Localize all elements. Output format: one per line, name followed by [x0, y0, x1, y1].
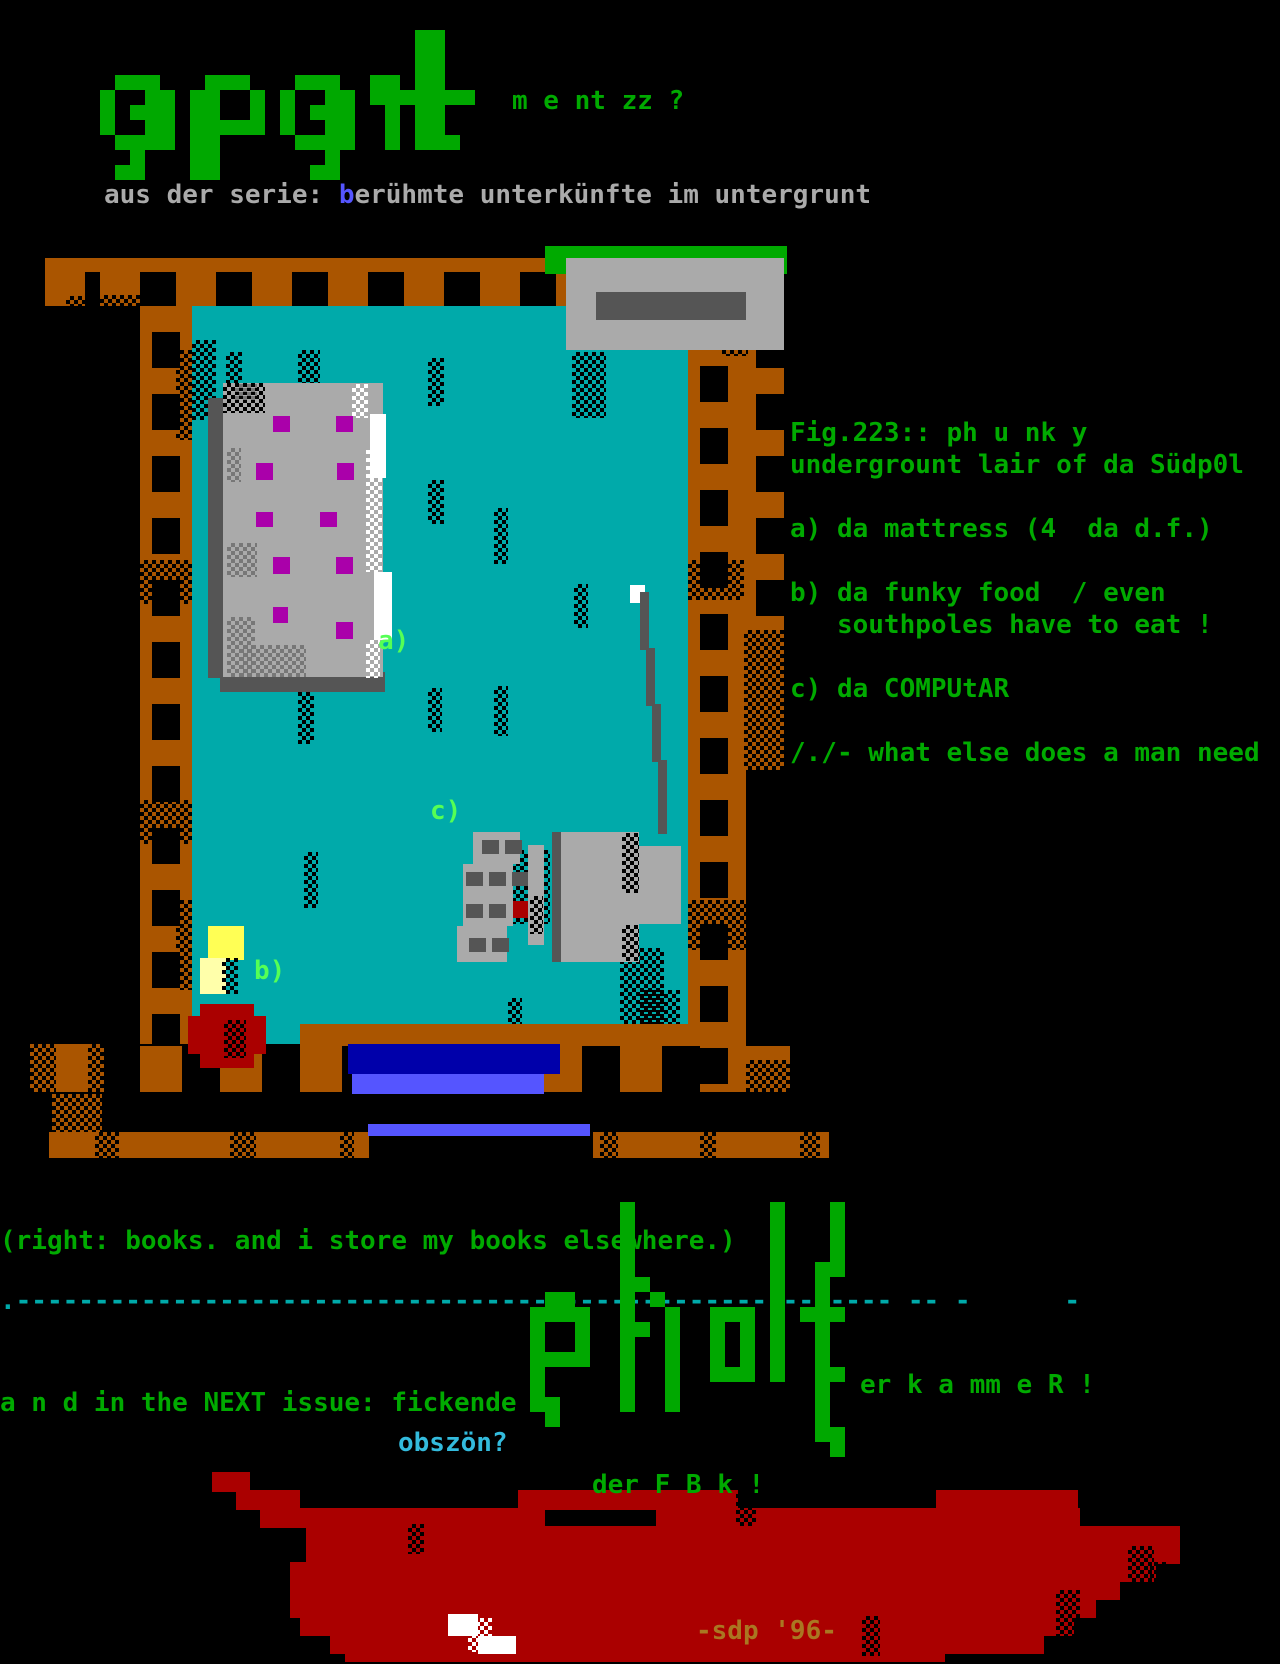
pixel-cell: [145, 90, 160, 105]
pixel-cell: [575, 1307, 590, 1322]
logo-suffix-text: m e nt zz ?: [512, 86, 684, 116]
pixel-rect: [688, 340, 746, 1092]
pixel-cell: [100, 120, 115, 135]
pixel-rect: [208, 926, 244, 960]
pixel-cell: [560, 1307, 575, 1322]
pixel-rect: [222, 958, 238, 994]
pixel-cell: [280, 105, 295, 120]
pixel-rect: [468, 1618, 492, 1652]
pixel-cell: [430, 135, 445, 150]
pixel-cell: [400, 90, 415, 105]
pixel-cell: [445, 90, 460, 105]
pixel-rect: [746, 1060, 790, 1092]
pixel-rect: [744, 306, 784, 630]
pixel-cell: [220, 120, 235, 135]
pixel-cell: [280, 120, 295, 135]
pixel-cell: [530, 1307, 545, 1322]
figure-caption-line: /./- what else does a man need: [790, 738, 1260, 768]
pixel-cell: [770, 1292, 785, 1307]
pixel-cell: [130, 135, 145, 150]
pixel-rect: [656, 1508, 1080, 1528]
pixel-cell: [830, 1247, 845, 1262]
pixel-rect: [212, 1472, 250, 1492]
pixel-rect: [652, 704, 661, 762]
pixel-rect: [552, 832, 561, 962]
figure-caption-line: Fig.223:: ph u nk y: [790, 418, 1087, 448]
pixel-rect: [240, 645, 306, 677]
pixel-rect: [95, 1132, 119, 1158]
pixel-cell: [145, 120, 160, 135]
pixel-cell: [190, 120, 205, 135]
pixel-cell: [160, 105, 175, 120]
pixel-cell: [415, 30, 430, 45]
pixel-rect: [466, 904, 483, 918]
pixel-cell: [770, 1307, 785, 1322]
pixel-cell: [325, 105, 340, 120]
pixel-cell: [770, 1217, 785, 1232]
pixel-rect: [513, 901, 528, 918]
pixel-cell: [665, 1307, 680, 1322]
pixel-rect: [640, 592, 649, 650]
pixel-rect: [227, 543, 257, 577]
pixel-cell: [205, 135, 220, 150]
pixel-cell: [415, 105, 430, 120]
pixel-cell: [545, 1292, 560, 1307]
pixel-rect: [230, 1132, 256, 1158]
pixel-rect: [744, 630, 784, 770]
pixel-cell: [815, 1427, 830, 1442]
pixel-cell: [575, 1352, 590, 1367]
pixel-rect: [574, 584, 588, 628]
pixel-rect: [1056, 1590, 1080, 1644]
pixel-cell: [620, 1337, 635, 1352]
pixel-cell: [620, 1262, 635, 1277]
pixel-cell: [725, 1307, 740, 1322]
pixel-cell: [310, 165, 325, 180]
pixel-cell: [190, 150, 205, 165]
pixel-cell: [530, 1367, 545, 1382]
pixel-cell: [620, 1217, 635, 1232]
pixel-rect: [428, 688, 442, 732]
pixel-cell: [830, 1442, 845, 1457]
pixel-cell: [385, 135, 400, 150]
pixel-cell: [340, 135, 355, 150]
pixel-rect: [236, 1490, 300, 1510]
pixel-cell: [145, 75, 160, 90]
pholt-suffix-text: er k a mm e R !: [860, 1370, 1095, 1400]
pixel-cell: [130, 105, 145, 120]
pixel-cell: [310, 105, 325, 120]
pixel-rect: [505, 840, 522, 854]
pixel-rect: [273, 557, 290, 574]
pixel-cell: [145, 105, 160, 120]
pixel-rect: [100, 295, 140, 319]
pixel-rect: [337, 463, 354, 480]
pixel-rect: [330, 1634, 1044, 1654]
pixel-cell: [800, 1307, 815, 1322]
pixel-rect: [494, 508, 508, 564]
pixel-rect: [366, 446, 382, 572]
pixel-cell: [650, 1292, 665, 1307]
pixel-cell: [250, 120, 265, 135]
pixel-cell: [205, 90, 220, 105]
pixel-rect: [88, 1044, 104, 1092]
pixel-cell: [665, 1352, 680, 1367]
pixel-cell: [160, 135, 175, 150]
pixel-cell: [385, 105, 400, 120]
pixel-cell: [100, 105, 115, 120]
pixel-cell: [620, 1247, 635, 1262]
pixel-cell: [830, 1262, 845, 1277]
pixel-cell: [575, 1322, 590, 1337]
pixel-cell: [205, 165, 220, 180]
sdp-credit: -sdp '96-: [696, 1616, 837, 1646]
pixel-cell: [710, 1307, 725, 1322]
pixel-cell: [415, 75, 430, 90]
pixel-cell: [815, 1262, 830, 1277]
pixel-rect: [100, 258, 568, 306]
pixel-rect: [298, 688, 314, 744]
pixel-cell: [620, 1322, 635, 1337]
pixel-cell: [460, 90, 475, 105]
pixel-cell: [530, 1322, 545, 1337]
figure-caption-line: southpoles have to eat !: [790, 610, 1213, 640]
pixel-rect: [290, 1580, 1120, 1600]
pixel-cell: [770, 1337, 785, 1352]
pixel-cell: [130, 150, 145, 165]
pixel-rect: [256, 463, 273, 480]
pixel-cell: [325, 165, 340, 180]
pixel-rect: [260, 1508, 545, 1528]
pixel-cell: [325, 120, 340, 135]
figure-caption-line: b) da funky food / even: [790, 578, 1166, 608]
figure-caption-line: a) da mattress (4 da d.f.): [790, 514, 1213, 544]
pixel-rect: [140, 800, 192, 844]
der-fbk-text: der F B k !: [592, 1470, 764, 1500]
pixel-cell: [575, 1337, 590, 1352]
figure-caption-line: c) da COMPUtAR: [790, 674, 1009, 704]
pixel-cell: [190, 135, 205, 150]
pixel-cell: [340, 105, 355, 120]
pixel-cell: [530, 1337, 545, 1352]
pixel-cell: [310, 75, 325, 90]
pixel-rect: [273, 607, 288, 623]
pixel-cell: [415, 120, 430, 135]
pixel-cell: [770, 1232, 785, 1247]
pixel-rect: [256, 512, 273, 527]
pixel-rect: [368, 1124, 590, 1136]
pixel-cell: [235, 120, 250, 135]
pixel-rect: [530, 896, 543, 934]
pixel-cell: [145, 135, 160, 150]
pixel-rect: [428, 358, 444, 406]
label-c: c): [430, 796, 461, 826]
pixel-cell: [620, 1202, 635, 1217]
pixel-cell: [770, 1367, 785, 1382]
pixel-cell: [190, 90, 205, 105]
pixel-cell: [815, 1307, 830, 1322]
pixel-cell: [430, 120, 445, 135]
figure-caption-line: undergrount lair of da Südp0l: [790, 450, 1244, 480]
pixel-cell: [710, 1322, 725, 1337]
pixel-cell: [620, 1352, 635, 1367]
pixel-cell: [445, 135, 460, 150]
pixel-cell: [415, 60, 430, 75]
pixel-cell: [740, 1352, 755, 1367]
pixel-rect: [176, 900, 192, 990]
pixel-cell: [205, 75, 220, 90]
pixel-rect: [336, 622, 353, 639]
pixel-cell: [430, 30, 445, 45]
obszon-text: obszön?: [398, 1428, 508, 1458]
pixel-cell: [665, 1337, 680, 1352]
pixel-cell: [190, 165, 205, 180]
subtitle-highlight-letter: b: [339, 180, 355, 210]
pixel-cell: [770, 1322, 785, 1337]
pixel-cell: [280, 90, 295, 105]
pixel-cell: [560, 1292, 575, 1307]
pixel-rect: [646, 648, 655, 706]
pixel-cell: [115, 165, 130, 180]
pixel-cell: [815, 1337, 830, 1352]
pixel-cell: [340, 90, 355, 105]
pixel-cell: [830, 1307, 845, 1322]
pixel-rect: [306, 1526, 1180, 1546]
pixel-cell: [385, 90, 400, 105]
pixel-cell: [100, 90, 115, 105]
pixel-rect: [227, 448, 241, 482]
pixel-cell: [545, 1307, 560, 1322]
series-subtitle: aus der serie: berühmte unterkünfte im u…: [104, 180, 871, 210]
pixel-cell: [235, 75, 250, 90]
pixel-rect: [469, 938, 486, 952]
label-a: a): [378, 626, 409, 656]
pixel-cell: [665, 1382, 680, 1397]
pixel-cell: [665, 1397, 680, 1412]
pixel-rect: [512, 872, 529, 886]
pixel-cell: [160, 90, 175, 105]
pixel-rect: [66, 296, 102, 318]
pixel-cell: [620, 1277, 635, 1292]
pixel-cell: [385, 120, 400, 135]
pixel-cell: [740, 1367, 755, 1382]
pixel-rect: [466, 872, 483, 886]
pixel-rect: [348, 1044, 560, 1074]
pixel-rect: [300, 1616, 1074, 1636]
pixel-rect: [622, 925, 639, 961]
subtitle-prefix: aus der serie:: [104, 180, 339, 210]
pixel-rect: [224, 1020, 246, 1058]
pixel-cell: [770, 1262, 785, 1277]
pixel-rect: [482, 840, 499, 854]
pixel-cell: [620, 1397, 635, 1412]
pixel-cell: [220, 75, 235, 90]
pixel-cell: [205, 150, 220, 165]
pixel-cell: [295, 75, 310, 90]
pixel-cell: [190, 105, 205, 120]
pixel-cell: [430, 105, 445, 120]
pixel-cell: [830, 1217, 845, 1232]
pixel-rect: [290, 1598, 1096, 1618]
pixel-cell: [205, 105, 220, 120]
pixel-rect: [352, 384, 368, 418]
pixel-cell: [740, 1337, 755, 1352]
pixel-cell: [430, 90, 445, 105]
pixel-cell: [815, 1277, 830, 1292]
pixel-cell: [710, 1352, 725, 1367]
pixel-rect: [700, 1132, 716, 1158]
pixel-cell: [115, 135, 130, 150]
pixel-cell: [770, 1202, 785, 1217]
pixel-cell: [385, 75, 400, 90]
pixel-cell: [815, 1322, 830, 1337]
pixel-cell: [620, 1232, 635, 1247]
pixel-rect: [622, 833, 639, 893]
pixel-cell: [545, 1397, 560, 1412]
pixel-rect: [688, 900, 746, 950]
pixel-cell: [830, 1202, 845, 1217]
pixel-rect: [936, 1490, 1078, 1510]
pixel-cell: [815, 1412, 830, 1427]
pixel-rect: [688, 560, 746, 600]
pixel-cell: [770, 1352, 785, 1367]
pixel-cell: [530, 1352, 545, 1367]
pixel-cell: [415, 45, 430, 60]
pixel-cell: [740, 1307, 755, 1322]
pixel-rect: [336, 416, 353, 432]
pixel-rect: [489, 872, 506, 886]
pixel-cell: [115, 75, 130, 90]
pixel-cell: [130, 165, 145, 180]
pixel-cell: [325, 75, 340, 90]
pixel-cell: [250, 105, 265, 120]
pixel-rect: [304, 852, 318, 908]
pixel-cell: [545, 1412, 560, 1427]
pixel-cell: [635, 1322, 650, 1337]
pixel-cell: [430, 45, 445, 60]
pixel-cell: [250, 90, 265, 105]
pixel-cell: [415, 135, 430, 150]
pixel-cell: [665, 1367, 680, 1382]
pixel-rect: [352, 1074, 544, 1094]
pixel-cell: [620, 1307, 635, 1322]
pixel-cell: [815, 1397, 830, 1412]
pixel-rect: [30, 1044, 56, 1092]
pixel-cell: [130, 75, 145, 90]
pixel-rect: [489, 904, 506, 918]
pixel-cell: [815, 1352, 830, 1367]
ansi-art-page: m e nt zz ? aus der serie: berühmte unte…: [0, 0, 1280, 1664]
pixel-cell: [620, 1292, 635, 1307]
pixel-rect: [1150, 1562, 1170, 1602]
pixel-rect: [639, 846, 681, 924]
pixel-cell: [815, 1367, 830, 1382]
pixel-cell: [770, 1277, 785, 1292]
label-b: b): [254, 956, 285, 986]
pixel-rect: [345, 1652, 945, 1662]
pixel-cell: [830, 1427, 845, 1442]
pixel-rect: [800, 1132, 820, 1158]
pixel-cell: [310, 135, 325, 150]
pixel-cell: [340, 120, 355, 135]
pixel-cell: [665, 1322, 680, 1337]
pixel-cell: [295, 135, 310, 150]
pixel-cell: [830, 1367, 845, 1382]
pixel-cell: [725, 1367, 740, 1382]
pixel-cell: [325, 150, 340, 165]
pixel-cell: [815, 1382, 830, 1397]
pixel-rect: [290, 1562, 1156, 1582]
pixel-cell: [430, 75, 445, 90]
pixel-rect: [320, 512, 337, 527]
pixel-rect: [572, 352, 606, 418]
pixel-rect: [428, 480, 444, 524]
pixel-cell: [830, 1232, 845, 1247]
pixel-cell: [740, 1322, 755, 1337]
pixel-cell: [530, 1382, 545, 1397]
pixel-cell: [620, 1382, 635, 1397]
pixel-cell: [545, 1352, 560, 1367]
pixel-rect: [596, 292, 746, 320]
pixel-cell: [635, 1277, 650, 1292]
pixel-cell: [205, 120, 220, 135]
pixel-rect: [408, 1524, 424, 1554]
pixel-cell: [620, 1367, 635, 1382]
pixel-cell: [325, 90, 340, 105]
pixel-rect: [235, 384, 257, 400]
pixel-rect: [862, 1616, 880, 1656]
pixel-rect: [140, 560, 192, 604]
pixel-cell: [710, 1337, 725, 1352]
next-issue-text: a n d in the NEXT issue: fickende: [0, 1388, 517, 1418]
pixel-cell: [770, 1247, 785, 1262]
pixel-cell: [370, 75, 385, 90]
pixel-cell: [430, 60, 445, 75]
pixel-cell: [370, 90, 385, 105]
pixel-cell: [815, 1292, 830, 1307]
pixel-cell: [160, 120, 175, 135]
pixel-cell: [530, 1397, 545, 1412]
subtitle-rest: erühmte unterkünfte im untergrunt: [354, 180, 871, 210]
pixel-rect: [494, 686, 508, 736]
pixel-rect: [336, 557, 353, 574]
pixel-cell: [710, 1367, 725, 1382]
pixel-cell: [560, 1352, 575, 1367]
pixel-rect: [658, 760, 667, 834]
pixel-rect: [340, 1132, 354, 1158]
pixel-rect: [492, 938, 509, 952]
pixel-rect: [176, 350, 192, 440]
pixel-cell: [325, 135, 340, 150]
pixel-rect: [300, 1024, 700, 1046]
pixel-rect: [306, 1544, 1180, 1564]
pixel-cell: [415, 90, 430, 105]
pixel-rect: [208, 398, 224, 678]
pixel-rect: [273, 416, 290, 432]
pixel-rect: [600, 1132, 618, 1158]
